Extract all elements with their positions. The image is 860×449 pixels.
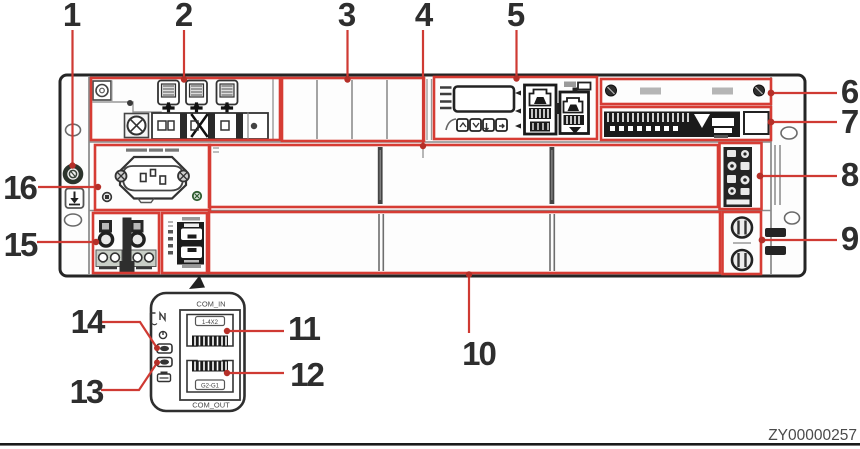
- svg-text:8: 8: [841, 156, 859, 193]
- svg-text:COM_IN: COM_IN: [196, 300, 225, 309]
- svg-text:14: 14: [71, 303, 106, 340]
- svg-text:2: 2: [175, 0, 193, 33]
- svg-text:1-4X2: 1-4X2: [202, 320, 219, 326]
- svg-text:15: 15: [4, 226, 38, 263]
- svg-text:16: 16: [3, 169, 37, 206]
- svg-text:9: 9: [841, 220, 859, 257]
- svg-text:13: 13: [70, 373, 104, 410]
- svg-text:11: 11: [288, 310, 321, 347]
- svg-text:7: 7: [841, 103, 859, 140]
- svg-text:4: 4: [415, 0, 434, 33]
- svg-text:12: 12: [290, 356, 324, 393]
- svg-text:G2-G1: G2-G1: [201, 384, 220, 390]
- svg-text:COM_OUT: COM_OUT: [192, 401, 230, 410]
- svg-text:1: 1: [63, 0, 81, 33]
- svg-text:ZY00000257: ZY00000257: [768, 427, 857, 444]
- svg-text:10: 10: [462, 335, 495, 372]
- svg-text:5: 5: [507, 0, 525, 33]
- svg-text:3: 3: [338, 0, 356, 33]
